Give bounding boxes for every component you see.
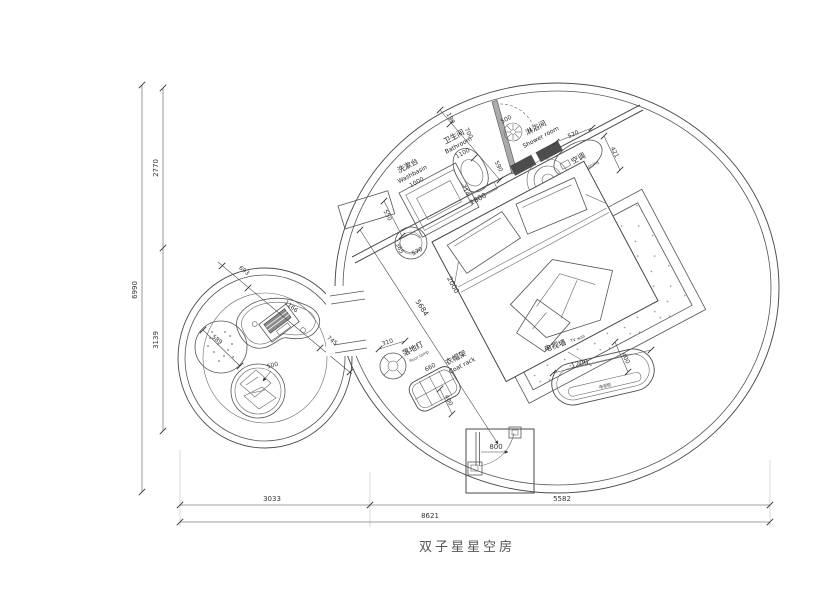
lounge-outer-wall (178, 268, 352, 448)
dim-h-right: 5582 (553, 495, 571, 503)
dim-421: 421 (609, 146, 621, 160)
dim-v-total: 6990 (131, 281, 139, 299)
dim-190: 190 (445, 112, 457, 126)
dim-590: 590 (493, 160, 505, 174)
shower-head-icon (504, 123, 522, 141)
table-hole (300, 327, 306, 333)
lounge-floor-ring (203, 293, 327, 423)
dotted-stool (195, 321, 247, 373)
dim-589: 589 (210, 334, 223, 347)
dim-800: 800 (489, 443, 502, 451)
dim-diag: 5684 (413, 298, 430, 318)
dim-h-total: 8621 (421, 512, 439, 520)
dim-570: 570 (411, 246, 425, 258)
dim-500-cushion: 500 (266, 361, 279, 371)
dim-550: 550 (382, 209, 394, 223)
floorplan-drawing: 空调 air-conditioning 电视柜 5 (0, 0, 837, 592)
dim-h-left: 3033 (263, 495, 281, 503)
dim-v-upper: 2770 (152, 159, 160, 177)
lounge-inner-wall (185, 275, 345, 441)
dim-693: 693 (237, 265, 250, 278)
floor-lamp (380, 353, 406, 379)
dim-400-coat: 400 (443, 394, 455, 408)
cushion-seat (231, 364, 285, 418)
dim-310: 310 (381, 337, 394, 347)
floorplan-canvas: 空调 air-conditioning 电视柜 5 (0, 0, 837, 592)
entrance-vestibule (466, 427, 534, 493)
dim-660: 660 (424, 362, 438, 374)
dim-520: 520 (567, 129, 580, 140)
drawing-title: 双子星星空房 (419, 539, 515, 555)
dim-v-lower: 3139 (152, 331, 160, 349)
dim-400-tv: 400 (620, 352, 632, 366)
kidney-table (232, 289, 323, 352)
table-hole (252, 321, 258, 327)
dim-365: 365 (394, 242, 406, 256)
washbasin-label: 洗漱台 Washbasin 1000 (391, 153, 433, 193)
